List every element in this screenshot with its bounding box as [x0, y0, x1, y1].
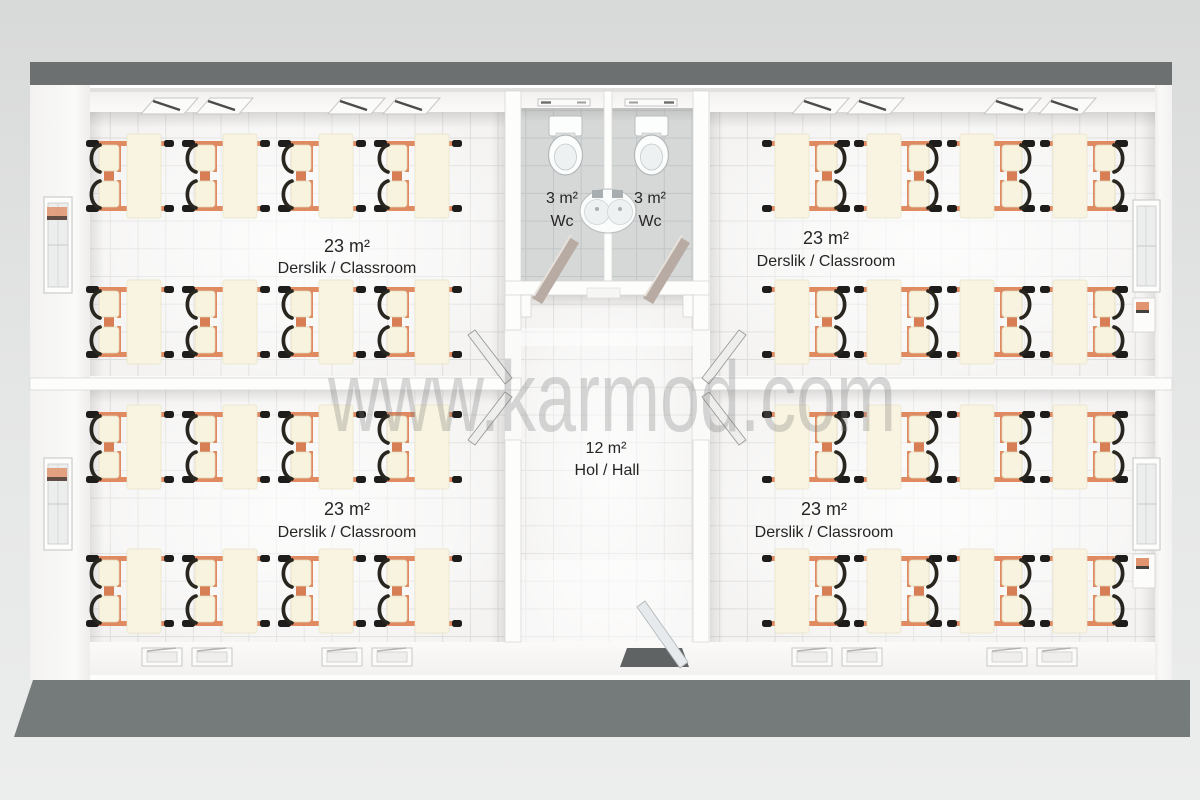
- svg-text:Derslik / Classroom: Derslik / Classroom: [757, 253, 896, 270]
- svg-text:23 m²: 23 m²: [801, 499, 847, 519]
- svg-text:www.karmod.com: www.karmod.com: [327, 341, 896, 452]
- svg-text:Derslik / Classroom: Derslik / Classroom: [278, 524, 417, 541]
- svg-text:23 m²: 23 m²: [803, 228, 849, 248]
- svg-text:3 m²: 3 m²: [546, 190, 579, 207]
- svg-text:Derslik / Classroom: Derslik / Classroom: [278, 260, 417, 277]
- svg-text:Hol / Hall: Hol / Hall: [575, 462, 640, 479]
- svg-text:Wc: Wc: [550, 213, 573, 230]
- svg-text:Wc: Wc: [638, 213, 661, 230]
- svg-text:23 m²: 23 m²: [324, 499, 370, 519]
- svg-text:3 m²: 3 m²: [634, 190, 667, 207]
- svg-text:23 m²: 23 m²: [324, 236, 370, 256]
- svg-text:Derslik / Classroom: Derslik / Classroom: [755, 524, 894, 541]
